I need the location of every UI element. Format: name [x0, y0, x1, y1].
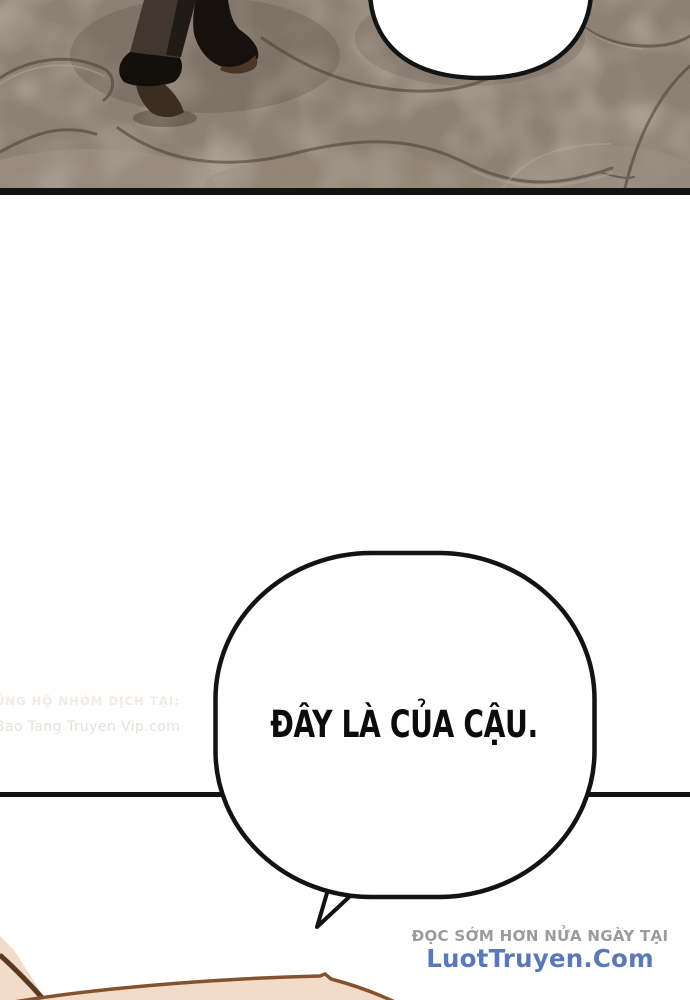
- watermark-tagline: ĐỌC SỚM HƠN NỬA NGÀY TẠI: [405, 928, 675, 945]
- speech-bubble-text: ĐÂY LÀ CỦA CẬU.: [259, 551, 549, 897]
- site-watermark: ĐỌC SỚM HƠN NỬA NGÀY TẠI LuotTruyen.Com: [405, 928, 675, 973]
- panel-border-bottom: [0, 188, 690, 195]
- left-watermark-line2: Bao Tang Truyen Vip.com: [0, 720, 180, 734]
- left-boot: [119, 52, 182, 87]
- comic-page: ỦNG HỘ NHÓM DỊCH TẠI: Bao Tang Truyen Vi…: [0, 0, 690, 1000]
- left-watermark-line1: ỦNG HỘ NHÓM DỊCH TẠI:: [0, 696, 180, 708]
- panel-street-scene: [0, 0, 690, 195]
- skin-corner-wedge: [0, 936, 46, 1000]
- watermark-site-name: LuotTruyen.Com: [405, 945, 675, 973]
- stone-ground-illustration: [0, 0, 690, 195]
- left-watermark: ỦNG HỘ NHÓM DỊCH TẠI: Bao Tang Truyen Vi…: [0, 696, 180, 734]
